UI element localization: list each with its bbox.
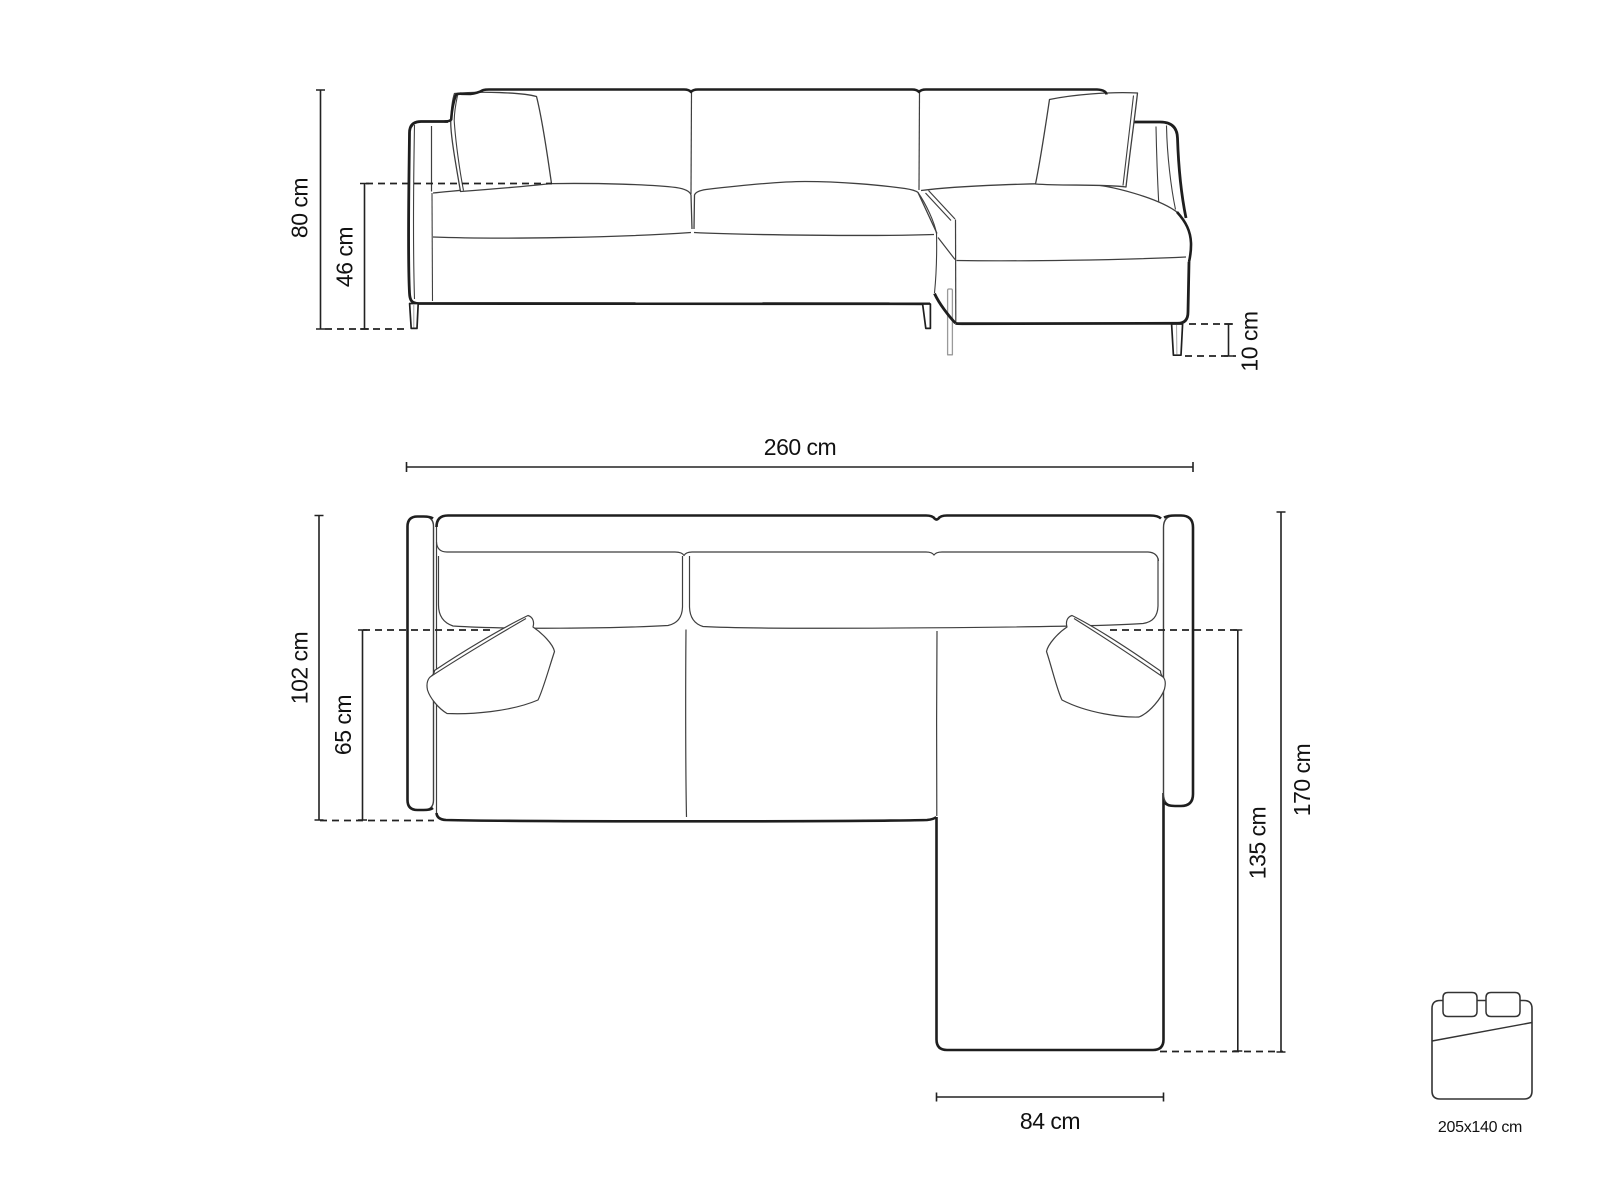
svg-text:46 cm: 46 cm [332, 227, 358, 287]
svg-text:80 cm: 80 cm [287, 178, 313, 238]
svg-text:260 cm: 260 cm [764, 434, 836, 460]
svg-text:135 cm: 135 cm [1245, 807, 1271, 879]
svg-text:170 cm: 170 cm [1289, 744, 1315, 816]
svg-text:205x140 cm: 205x140 cm [1438, 1119, 1522, 1136]
svg-text:65 cm: 65 cm [330, 695, 356, 755]
svg-text:84 cm: 84 cm [1020, 1108, 1080, 1134]
svg-text:10 cm: 10 cm [1237, 311, 1263, 371]
svg-text:102 cm: 102 cm [287, 632, 313, 704]
